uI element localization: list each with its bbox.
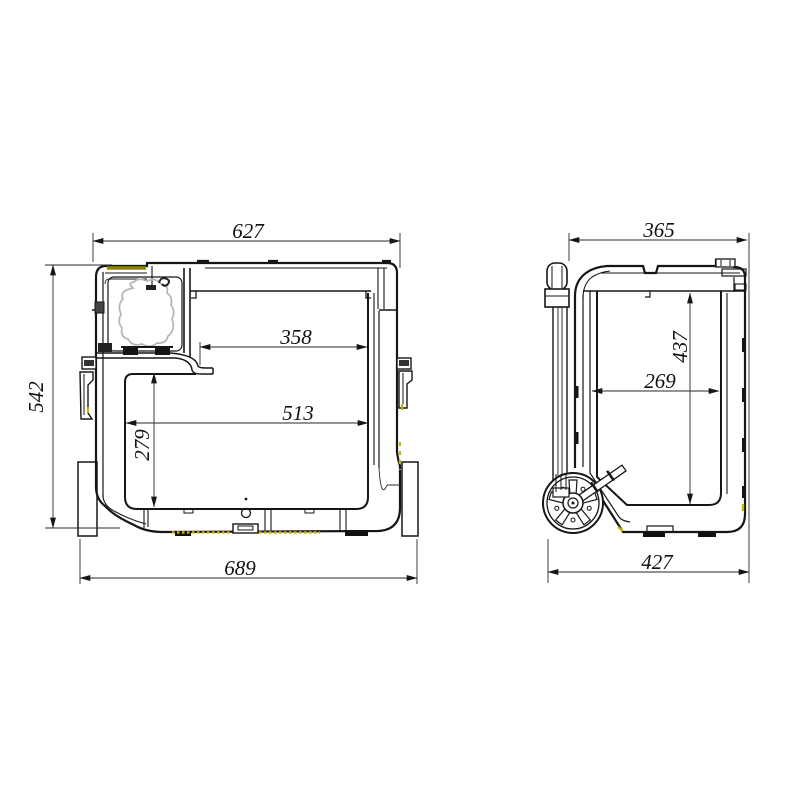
tub-center-dot: [245, 498, 248, 501]
side-dim-inner-depth: 269: [644, 369, 676, 393]
drain-plug: [233, 524, 258, 533]
inner-tub-outline: [125, 293, 368, 509]
technical-drawing-page: 627 542 358 513 279 689: [0, 0, 805, 805]
lid-hinge: [716, 259, 746, 292]
front-dim-overall-height: 542: [24, 381, 48, 413]
front-dim-base-width: 689: [224, 556, 256, 580]
side-view: 365 437 269 427: [543, 218, 749, 583]
front-dim-inner-depth: 279: [130, 429, 154, 461]
front-right-latch: [397, 358, 412, 410]
side-yellow-mark-left: [618, 527, 623, 531]
front-view: 627 542 358 513 279 689: [24, 219, 418, 584]
front-dim-top-width: 627: [232, 219, 265, 243]
trolley-handle: [545, 263, 569, 497]
side-lid-lug: [645, 291, 650, 297]
compartment-step: [170, 353, 213, 374]
front-left-base-block: [78, 462, 97, 536]
side-dim-top-depth: 365: [642, 218, 675, 242]
wheel: [543, 465, 626, 533]
front-right-seam: [379, 468, 400, 490]
dimension-drawing: 627 542 358 513 279 689: [0, 0, 805, 805]
front-dim-inner-width: 513: [282, 401, 314, 425]
front-body-outline: [96, 263, 400, 532]
lid-left-foot: [146, 285, 156, 290]
side-dim-inner-height: 437: [668, 330, 692, 363]
front-right-base-block: [402, 462, 418, 536]
front-foot-right: [345, 530, 368, 536]
wall-clip: [95, 302, 104, 313]
front-dim-inner-top-width: 358: [279, 325, 312, 349]
lid-lugs: [191, 291, 371, 298]
compressor-compartment-inner: [108, 277, 182, 351]
compartment-corner-hardware: [98, 343, 112, 352]
side-foot-right: [698, 532, 716, 537]
front-left-latch: [80, 357, 96, 419]
side-dim-base-depth: 427: [641, 550, 674, 574]
compressor-foot-left: [123, 348, 138, 355]
compressor-foot-right: [155, 348, 170, 355]
side-foot-left: [643, 532, 665, 537]
